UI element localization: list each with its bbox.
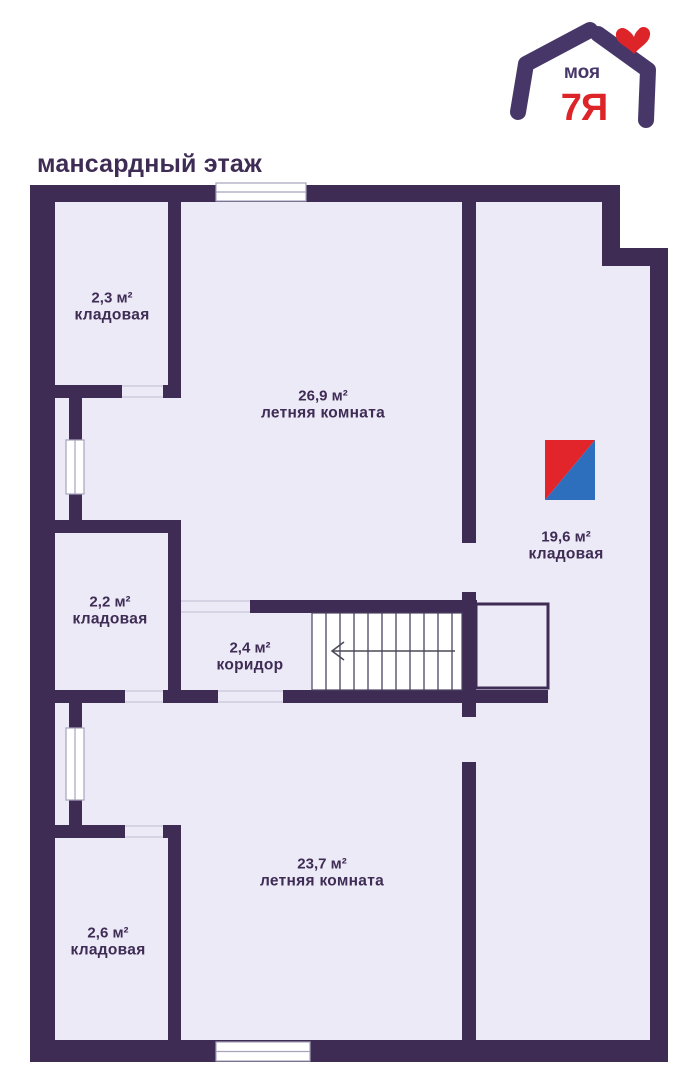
window-top-icon	[216, 183, 306, 201]
room-area: 2,2 м²	[72, 593, 147, 610]
staircase	[312, 604, 548, 690]
room-area: 2,4 м²	[217, 639, 284, 656]
window-left-upper-icon	[66, 440, 84, 494]
floorplan-page: мансардный этаж моя 7Я 2,3 м² кладовая 2…	[0, 0, 685, 1080]
room-label-storage-3: 2,2 м² кладовая	[72, 593, 147, 628]
room-label-summer-room-2: 23,7 м² летняя комната	[260, 855, 384, 890]
brand-logo: моя 7Я	[498, 8, 685, 153]
brand-logo-graphic: моя 7Я	[498, 8, 685, 153]
room-name: летняя комната	[261, 405, 385, 423]
room-label-storage-4: 2,6 м² кладовая	[70, 924, 145, 959]
room-label-corridor: 2,4 м² коридор	[217, 639, 284, 674]
brand-word-main: 7Я	[561, 87, 607, 129]
room-area: 26,9 м²	[261, 387, 385, 404]
page-title: мансардный этаж	[37, 150, 262, 179]
room-name: летняя комната	[260, 873, 384, 891]
room-name: кладовая	[74, 307, 149, 325]
room-name: кладовая	[70, 942, 145, 960]
window-bottom-icon	[216, 1042, 310, 1061]
red-blue-marker-icon	[545, 440, 595, 500]
brand-word-top: моя	[564, 62, 600, 83]
room-area: 19,6 м²	[528, 528, 603, 545]
room-area: 2,3 м²	[74, 289, 149, 306]
room-label-summer-room-1: 26,9 м² летняя комната	[261, 387, 385, 422]
room-name: коридор	[217, 657, 284, 675]
window-left-lower-icon	[66, 728, 84, 800]
room-name: кладовая	[528, 546, 603, 564]
stairwell-opening	[476, 604, 548, 688]
room-name: кладовая	[72, 611, 147, 629]
room-label-storage-2: 19,6 м² кладовая	[528, 528, 603, 563]
room-label-storage-1: 2,3 м² кладовая	[74, 289, 149, 324]
room-area: 2,6 м²	[70, 924, 145, 941]
room-area: 23,7 м²	[260, 855, 384, 872]
